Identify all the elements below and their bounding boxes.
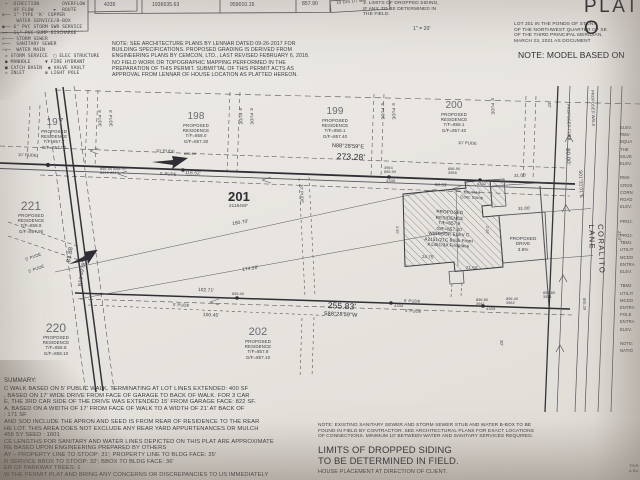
proposed-curb-label: PROPOSED CURB xyxy=(565,104,571,141)
pude-5-label: 5' PUDE xyxy=(96,110,102,127)
dim-31-00-b: 31.00' xyxy=(518,206,531,212)
spot-elevation: 3954 855.90 xyxy=(384,166,396,175)
pude-5-label: 5' PUDE xyxy=(173,303,190,309)
monument-4333-label: 4333 xyxy=(486,307,495,312)
pude-10-label: 10' PUDE xyxy=(18,153,37,159)
lot-198-details: PROPOSED RESIDENCE T/F=858.0 G/F=857.30 xyxy=(174,123,218,144)
east-bearing: S01°31'01"E xyxy=(576,170,583,198)
spot-elevation: 855.39 xyxy=(582,298,587,310)
building-label: PROPOSED RESIDENCE T/F=857.9 G/F=857.20 … xyxy=(412,208,486,250)
dim-100-45: 100.45' xyxy=(203,313,220,320)
dim-2-00: 2.00' xyxy=(485,226,490,234)
proposed-drive-label: PROPOSED DRIVE 3.8% xyxy=(506,236,540,252)
spot-elevation: 856.80 3941 xyxy=(476,298,488,307)
lot-221-number: 221 xyxy=(13,199,49,213)
benchmark-column: ELEV. RM1- SQUA THE SILVE ELEV. RM2- CRO… xyxy=(620,124,640,355)
lot-198-number: 198 xyxy=(181,111,211,123)
pude-5-label: 5' PUDE xyxy=(379,103,385,120)
setback-30-label: 30' xyxy=(498,340,503,346)
monument-4335-label: 4335 xyxy=(386,179,395,184)
model-note: NOTE: MODEL BASED ON xyxy=(518,50,625,60)
lot-202-details: PROPOSED RESIDENCE T/F=857.8 G/F=857.10 xyxy=(236,339,280,360)
north-bearing: N88°28'59"E xyxy=(332,143,365,151)
coord-table-point: 4335 xyxy=(104,3,116,9)
street-name: CORALITO LANE xyxy=(586,224,605,275)
pude-5-label: 5' PUDE xyxy=(390,103,396,120)
lot-220-number: 220 xyxy=(38,321,74,335)
lot-221-details: PROPOSED RESIDENCE T/F=858.8 G/F=857.90 xyxy=(9,213,53,234)
lot-197-details: PROPOSED RESIDENCE T/F=857.7 G/F=857.00 xyxy=(32,129,76,150)
covered-stoop-label: Covered Conc Stoop xyxy=(456,190,488,201)
dim-21-58: 21.58' xyxy=(466,265,479,271)
spot-elevation: 856.40 3962 xyxy=(506,297,518,306)
dropped-siding-note: 3. LIMITS OF DROPPED SIDING, IF ANY, TO … xyxy=(363,1,439,18)
pude-10-label: 10' PUDE xyxy=(298,184,304,203)
architecture-note: NOTE: SEE ARCHITECTURE PLANS BY LENNAR D… xyxy=(112,41,309,78)
proposed-walk-label: PROPOSED WALK xyxy=(589,90,595,126)
spot-elevation: 856.90 3958 xyxy=(448,167,460,176)
east-distance: 80.00' xyxy=(563,148,571,165)
monument-4332-label: 4332 xyxy=(477,182,486,187)
lot-200-details: PROPOSED RESIDENCE T/F=858.1 G/F=857.40 xyxy=(432,112,476,133)
setback-30-label: 30' xyxy=(546,102,551,108)
lot-200-number: 200 xyxy=(439,100,469,112)
spot-elevation: 855.00 xyxy=(232,292,244,296)
lot-199-number: 199 xyxy=(320,106,350,118)
pude-10-label: 10' PUDE xyxy=(156,149,175,155)
dim-50-33: 50.33' xyxy=(435,182,448,188)
limits-note: LIMITS OF DROPPED SIDING TO BE DETERMINE… xyxy=(318,445,459,467)
lot-199-details: PROPOSED RESIDENCE T/F=858.1 G/F=857.40 xyxy=(313,118,357,139)
pude-5-label: 5' PUDE xyxy=(489,98,495,115)
dim-31-00-a: 31.00' xyxy=(514,173,527,179)
pude-10-label: 10' PUDE xyxy=(458,141,477,147)
sewer-note: NOTE: EXISTING SANITARY SEWER AND STORM … xyxy=(318,423,534,440)
lot-197-number: 197 xyxy=(40,117,70,129)
spot-elevation: 855.00 xyxy=(184,152,196,156)
pude-5-label: 5' PUDE xyxy=(237,108,243,125)
scale-label: 1" = 20' xyxy=(413,27,431,33)
coord-table-easting: 959010.15 xyxy=(230,3,255,9)
summary-title: SUMMARY: xyxy=(4,378,37,385)
lot-220-details: PROPOSED RESIDENCE T/F=858.8 G/F=858.10 xyxy=(34,335,78,356)
pude-5-label: 5' PUDE xyxy=(405,309,422,315)
pude-5-label: 5' PUDE xyxy=(107,110,113,127)
pude-5-label: 5' PUDE xyxy=(248,108,254,125)
dim-24-75: 24.75' xyxy=(422,254,435,260)
south-distance: 255.83' xyxy=(327,300,356,311)
monument-4334-label: 4334 xyxy=(394,304,403,309)
spot-elevation: 855.80 3541 xyxy=(543,291,555,300)
lot-202-number: 202 xyxy=(240,326,276,339)
dim-3-00: 3.00' xyxy=(395,226,400,234)
north-distance: 273.28' xyxy=(337,151,366,162)
lot-201-area: 21164SF xyxy=(229,203,248,208)
pude-5-label: 5' PUDE xyxy=(404,299,421,305)
legend: ─□─ DROPPED SIDING ▼ SYMBOL ON LOT → DIR… xyxy=(2,0,102,77)
dim-102-71: 102.71' xyxy=(198,288,215,295)
house-placement-note: HOUSE PLACEMENT AT DIRECTION OF CLIENT. xyxy=(318,469,447,475)
dim-118-52: 118.52' xyxy=(185,171,201,177)
legal-description: LOT 201 IN THE PONDS OF STONY OF THE NOR… xyxy=(514,22,640,45)
coord-table-northing: 1936535.63 xyxy=(152,3,179,9)
summary-body: C WALK BASED ON 5' PUBLIC WALK, TERMINAT… xyxy=(4,386,274,478)
plat-survey-photo: ─□─ DROPPED SIDING ▼ SYMBOL ON LOT → DIR… xyxy=(0,0,640,480)
coord-table-elevation: 857.90 xyxy=(302,2,318,8)
spot-elevation: 855.50 855.70 8619 8617 xyxy=(100,167,126,176)
pude-5-label: 5' PUDE xyxy=(160,172,177,178)
corner-note: THIS A BU xyxy=(629,464,640,473)
